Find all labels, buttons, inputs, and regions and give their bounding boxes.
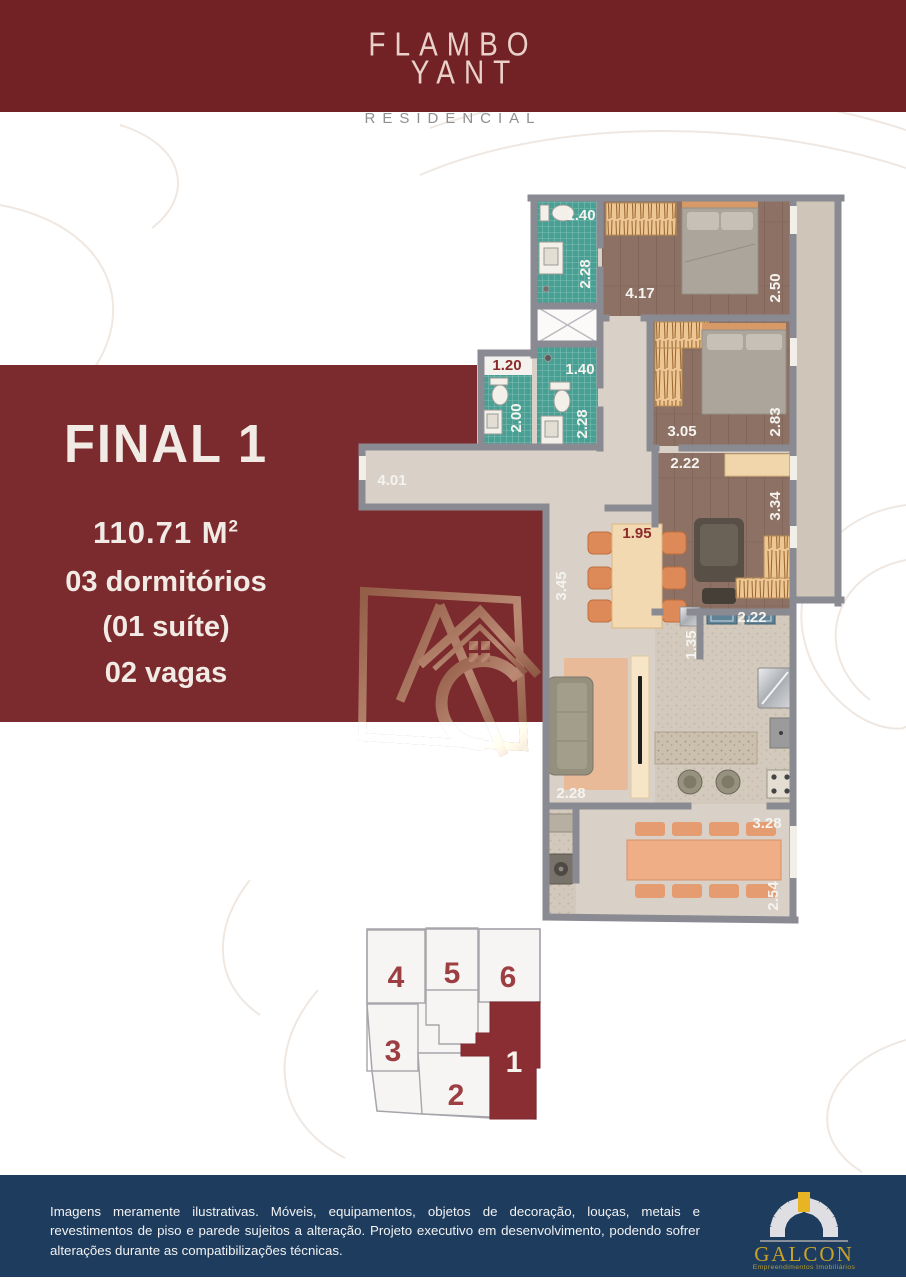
- bedroom2-bed: [702, 323, 786, 414]
- footer-bar: Imagens meramente ilustrativas. Móveis, …: [0, 1175, 906, 1277]
- measurement-label: 2.54: [765, 881, 782, 911]
- keyplan-unit-2: 2: [448, 1079, 465, 1112]
- measurement-label: 2.83: [767, 407, 784, 436]
- header-bar: FLAMBO YANT: [0, 0, 906, 112]
- measurement-label: 2.28: [574, 409, 591, 438]
- galcon-arch-icon: [742, 1180, 866, 1242]
- keyplan-unit-6: 6: [500, 961, 517, 994]
- galcon-logo: GALCON Empreendimentos Imobiliários: [742, 1180, 866, 1275]
- keyplan-unit-3: 3: [385, 1035, 402, 1068]
- keyplan-unit-5: 5: [444, 957, 461, 990]
- measurement-label: 1.20: [492, 357, 521, 374]
- area-superscript: 2: [229, 517, 239, 536]
- measurement-label: 2.50: [767, 273, 784, 302]
- measurement-label: 3.05: [667, 423, 696, 440]
- measurement-label: 3.28: [752, 815, 781, 832]
- measurement-label: 4.17: [625, 285, 654, 302]
- logo-line-2: YANT: [12, 54, 906, 92]
- residencial-subtitle: RESIDENCIAL: [0, 110, 906, 127]
- measurement-label: 2.22: [670, 455, 699, 472]
- measurement-label: 2.28: [556, 785, 585, 802]
- key-plan: 4 5 6 3 2 1: [360, 925, 550, 1130]
- measurement-label: 1.35: [683, 630, 700, 659]
- measurement-label: 4.01: [377, 472, 406, 489]
- flyer-page: FLAMBO YANT RESIDENCIAL FINAL 1 110.71 M…: [0, 0, 906, 1280]
- keyplan-unit-4: 4: [388, 961, 405, 994]
- bedroom3-wardrobe-bottom: [736, 578, 791, 598]
- measurement-label: 3.45: [553, 571, 570, 600]
- area-value: 110.71 M: [93, 515, 229, 550]
- flamboyant-logo: FLAMBO YANT: [0, 26, 906, 86]
- bedroom2-wardrobe-side: [655, 348, 682, 406]
- shaft: [537, 307, 598, 343]
- floor-plan: 1.40 2.28 4.17 2.50 1.20 2.00 1.40 2.28 …: [350, 190, 850, 930]
- suite-bed: [682, 201, 758, 294]
- measurement-label: 2.28: [577, 259, 594, 288]
- galcon-tagline: Empreendimentos Imobiliários: [742, 1264, 866, 1271]
- living-sofa: [547, 677, 593, 775]
- feature-vagas: 02 vagas: [0, 657, 332, 690]
- feature-dormitorios: 03 dormitórios: [0, 566, 332, 599]
- suite-wardrobe: [606, 203, 676, 235]
- measurement-label: 2.22: [737, 609, 766, 626]
- side-corridor-floor: [796, 201, 838, 600]
- bedroom3-closet: [725, 454, 791, 476]
- ac-house-watermark-icon: [352, 583, 542, 778]
- unit-title: FINAL 1: [10, 413, 322, 475]
- measurement-label: 1.95: [622, 525, 651, 542]
- unit-area: 110.71 M2: [0, 515, 332, 551]
- measurement-label: 1.40: [565, 361, 594, 378]
- feature-suite: (01 suíte): [0, 611, 332, 644]
- tv-panel: [631, 656, 649, 798]
- measurement-label: 2.00: [508, 403, 525, 432]
- bedroom2-wardrobe-top: [655, 322, 709, 348]
- measurement-label: 3.34: [767, 491, 784, 521]
- measurement-label: 1.40: [566, 207, 595, 224]
- keyplan-unit-1: 1: [506, 1046, 523, 1079]
- disclaimer-text: Imagens meramente ilustrativas. Móveis, …: [50, 1202, 700, 1260]
